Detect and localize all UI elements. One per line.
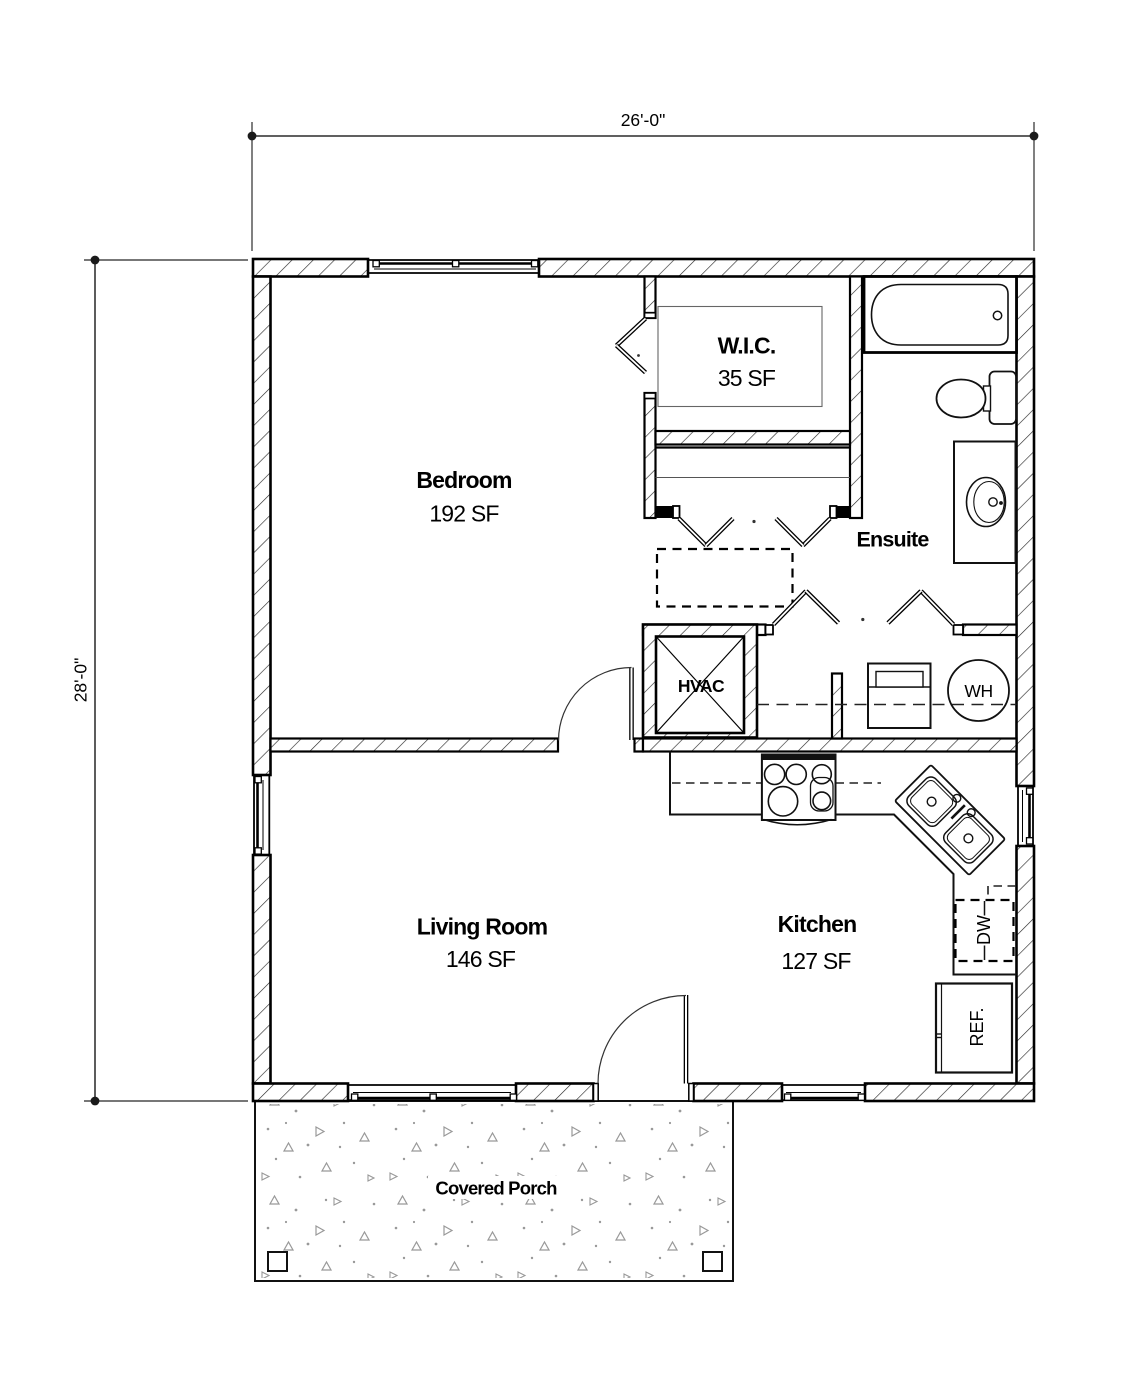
- svg-text:28'-0": 28'-0": [71, 658, 91, 703]
- svg-text:35 SF: 35 SF: [718, 365, 776, 391]
- svg-text:WH: WH: [964, 681, 992, 701]
- svg-text:Bedroom: Bedroom: [416, 467, 512, 493]
- svg-text:REF.: REF.: [967, 1007, 987, 1046]
- svg-text:192 SF: 192 SF: [429, 501, 499, 527]
- svg-text:Covered Porch: Covered Porch: [435, 1178, 557, 1199]
- svg-text:127 SF: 127 SF: [781, 948, 851, 974]
- svg-text:26'-0": 26'-0": [621, 110, 666, 130]
- svg-text:Kitchen: Kitchen: [778, 911, 857, 937]
- svg-text:Ensuite: Ensuite: [856, 528, 929, 552]
- svg-text:Living Room: Living Room: [417, 914, 548, 940]
- svg-text:DW: DW: [974, 915, 994, 945]
- svg-text:146 SF: 146 SF: [446, 946, 516, 972]
- svg-text:W.I.C.: W.I.C.: [718, 333, 776, 359]
- svg-text:HVAC: HVAC: [678, 676, 725, 696]
